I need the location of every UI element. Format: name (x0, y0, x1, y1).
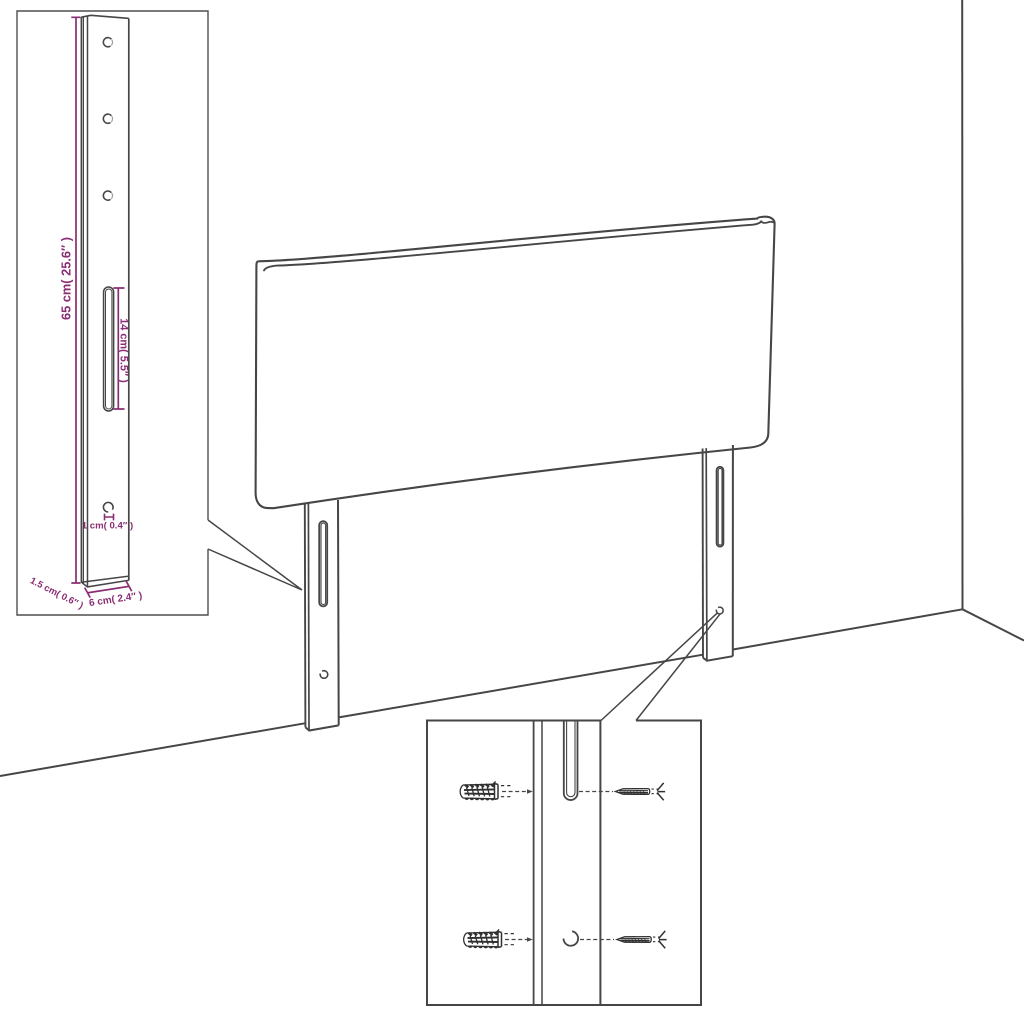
svg-text:65 cm( 25.6″ ): 65 cm( 25.6″ ) (59, 237, 74, 320)
svg-text:14 cm( 5.5″ ): 14 cm( 5.5″ ) (118, 318, 130, 383)
svg-text:1 cm( 0.4″ ): 1 cm( 0.4″ ) (82, 520, 134, 531)
